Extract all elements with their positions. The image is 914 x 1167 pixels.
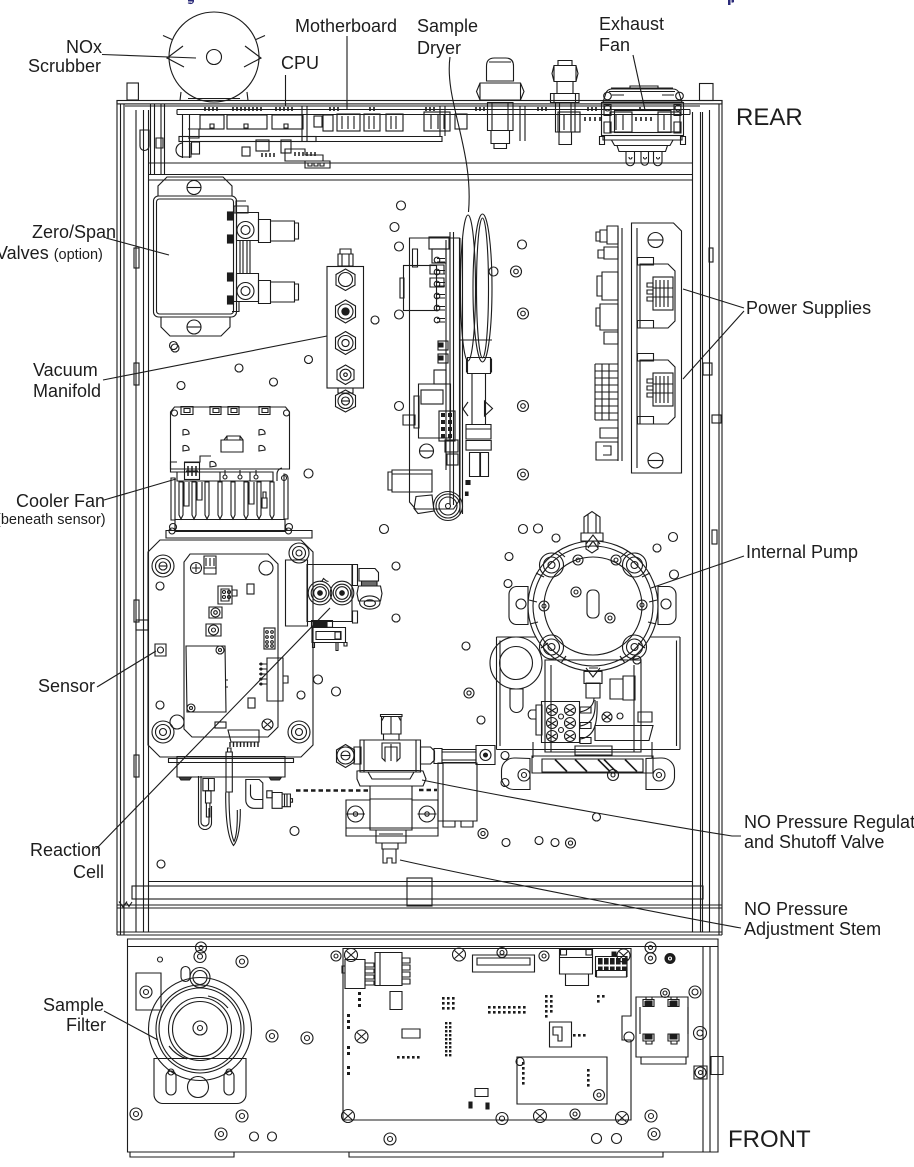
svg-text:Power Supplies: Power Supplies [746, 298, 871, 318]
svg-text:Vacuum: Vacuum [33, 360, 98, 380]
svg-text:Zero/Span: Zero/Span [32, 222, 116, 242]
svg-text:Scrubber: Scrubber [28, 56, 101, 76]
svg-text:Fan: Fan [599, 35, 630, 55]
svg-text:Cell: Cell [73, 862, 104, 882]
svg-text:Sample: Sample [417, 16, 478, 36]
svg-text:(beneath sensor): (beneath sensor) [0, 512, 106, 528]
svg-text:REAR: REAR [736, 104, 803, 131]
svg-text:Reaction: Reaction [30, 840, 101, 860]
svg-text:Manifold: Manifold [33, 381, 101, 401]
svg-text:NO Pressure: NO Pressure [744, 899, 848, 919]
svg-text:Adjustment Stem: Adjustment Stem [744, 919, 881, 939]
svg-text:Cooler Fan: Cooler Fan [16, 491, 105, 511]
svg-text:Internal Pump: Internal Pump [746, 542, 858, 562]
svg-text:Sample: Sample [43, 995, 104, 1015]
svg-text:Motherboard: Motherboard [295, 16, 397, 36]
svg-text:Sensor: Sensor [38, 676, 95, 696]
svg-text:CPU: CPU [281, 53, 319, 73]
svg-text:Filter: Filter [66, 1015, 106, 1035]
svg-text:NOx: NOx [66, 37, 102, 57]
svg-text:NO Pressure Regulat: NO Pressure Regulat [744, 812, 914, 832]
svg-text:Dryer: Dryer [417, 38, 461, 58]
svg-text:Exhaust: Exhaust [599, 14, 664, 34]
svg-text:and Shutoff Valve: and Shutoff Valve [744, 832, 884, 852]
svg-text:FRONT: FRONT [728, 1126, 811, 1153]
